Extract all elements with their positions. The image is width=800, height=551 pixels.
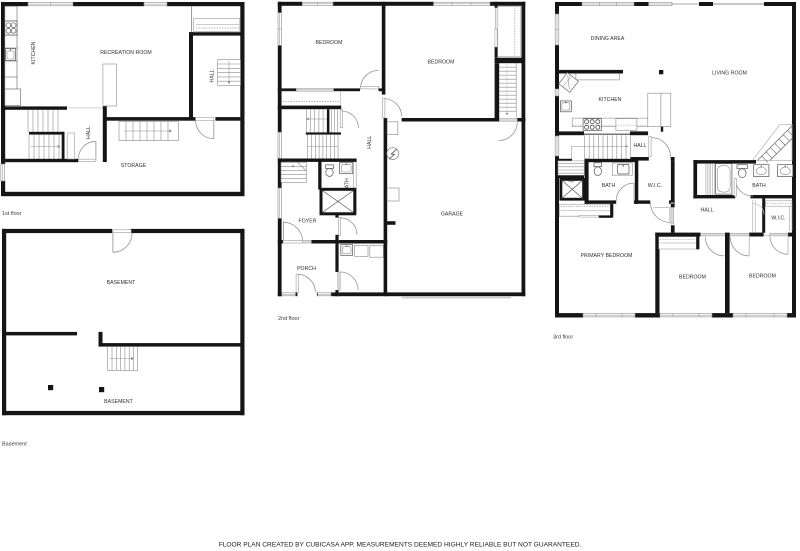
svg-text:HALL: HALL bbox=[210, 69, 216, 82]
svg-text:HALL: HALL bbox=[86, 126, 92, 139]
svg-text:KITCHEN: KITCHEN bbox=[31, 41, 37, 64]
svg-text:GARAGE: GARAGE bbox=[441, 212, 464, 218]
svg-text:Basement: Basement bbox=[2, 441, 27, 447]
svg-text:BATH: BATH bbox=[752, 183, 766, 189]
svg-text:W.I.C.: W.I.C. bbox=[648, 183, 662, 189]
svg-text:HALL: HALL bbox=[700, 208, 713, 214]
svg-text:BEDROOM: BEDROOM bbox=[428, 60, 455, 66]
svg-text:BATH: BATH bbox=[602, 183, 616, 189]
svg-text:3rd floor: 3rd floor bbox=[553, 335, 573, 341]
svg-text:BEDROOM: BEDROOM bbox=[749, 274, 776, 280]
svg-text:HALL: HALL bbox=[367, 136, 373, 149]
svg-text:HALL: HALL bbox=[633, 143, 646, 149]
svg-text:DINING AREA: DINING AREA bbox=[591, 36, 625, 42]
svg-text:1st floor: 1st floor bbox=[2, 211, 22, 217]
svg-text:KITCHEN: KITCHEN bbox=[599, 97, 622, 103]
svg-text:BEDROOM: BEDROOM bbox=[316, 40, 343, 46]
svg-text:FLOOR PLAN CREATED BY CUBICASA: FLOOR PLAN CREATED BY CUBICASA APP. MEAS… bbox=[219, 542, 582, 549]
svg-text:RECREATION ROOM: RECREATION ROOM bbox=[100, 50, 152, 56]
svg-text:BASEMENT: BASEMENT bbox=[104, 399, 133, 405]
svg-text:PORCH: PORCH bbox=[297, 266, 316, 272]
svg-text:W.I.C.: W.I.C. bbox=[771, 215, 785, 221]
svg-text:LIVING ROOM: LIVING ROOM bbox=[712, 70, 747, 76]
svg-text:PRIMARY BEDROOM: PRIMARY BEDROOM bbox=[581, 253, 633, 259]
svg-text:STORAGE: STORAGE bbox=[121, 163, 147, 169]
svg-text:BEDROOM: BEDROOM bbox=[679, 275, 706, 281]
svg-text:BASEMENT: BASEMENT bbox=[107, 280, 136, 286]
svg-text:FOYER: FOYER bbox=[299, 219, 317, 225]
svg-text:2nd floor: 2nd floor bbox=[278, 316, 300, 322]
